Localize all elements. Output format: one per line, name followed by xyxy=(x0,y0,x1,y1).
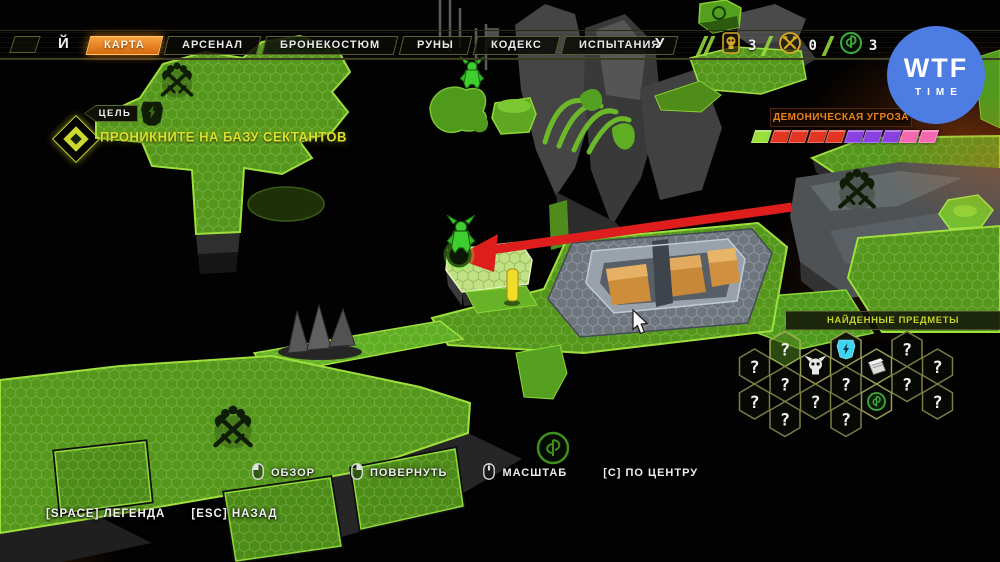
svg-text:?: ? xyxy=(902,341,912,361)
found-item-hex-codex[interactable] xyxy=(862,349,892,384)
threat-segment xyxy=(899,130,920,143)
svg-text:?: ? xyxy=(902,376,912,396)
nav-tab[interactable]: КОДЕКС xyxy=(472,36,560,55)
nav-tab[interactable]: АРСЕНАЛ xyxy=(163,36,261,55)
threat-label-strip: ДЕМОНИЧЕСКАЯ УГРОЗА xyxy=(770,108,912,127)
control-hint[interactable]: МАСШТАБ xyxy=(483,463,567,483)
currency-value: 3 xyxy=(748,38,756,54)
prev-tab-key: Й xyxy=(58,35,69,52)
armor-icon xyxy=(141,102,163,126)
found-item-hex-unknown[interactable]: ? xyxy=(770,367,800,402)
currency-separator xyxy=(761,36,774,56)
nav-tab[interactable]: РУНЫ xyxy=(399,36,472,55)
found-item-hex-unknown[interactable]: ? xyxy=(740,349,770,384)
found-item-hex-unknown[interactable]: ? xyxy=(892,367,922,402)
controls-bar: ОБЗОРПОВЕРНУТЬМАСШТАБ[C] ПО ЦЕНТРУ xyxy=(252,463,698,483)
found-item-hex-unknown[interactable]: ? xyxy=(831,367,861,402)
svg-text:?: ? xyxy=(810,393,820,413)
found-item-hex-token[interactable] xyxy=(862,384,892,419)
svg-text:?: ? xyxy=(780,341,790,361)
svg-text:?: ? xyxy=(749,358,759,378)
threat-label: ДЕМОНИЧЕСКАЯ УГРОЗА xyxy=(773,112,909,123)
currency-separator xyxy=(821,36,834,56)
objective-diamond-icon xyxy=(59,122,93,156)
control-hint[interactable]: [C] ПО ЦЕНТРУ xyxy=(603,467,698,479)
currency-item: 3 xyxy=(720,31,756,60)
currency-value: 3 xyxy=(869,38,877,54)
threat-segment xyxy=(825,130,846,143)
found-item-hex-rune[interactable] xyxy=(801,349,831,384)
threat-segment xyxy=(862,130,883,143)
control-label: ПОВЕРНУТЬ xyxy=(370,467,448,479)
objective-tag-label: ЦЕЛЬ xyxy=(85,106,137,121)
found-item-hex-unknown[interactable]: ? xyxy=(770,402,800,437)
control-hint[interactable]: ОБЗОР xyxy=(252,463,315,483)
found-item-hex-unknown-highlight[interactable]: ? xyxy=(770,332,800,367)
threat-segment xyxy=(769,130,790,143)
found-items-title: НАЙДЕННЫЕ ПРЕДМЕТЫ xyxy=(827,315,959,326)
wtf-time-logo: WTF TIME xyxy=(887,26,985,124)
currency-item: 0 xyxy=(778,31,816,60)
token-item-icon xyxy=(868,393,885,410)
nav-corner-decor xyxy=(9,36,41,53)
key-hint[interactable]: [SPACE] ЛЕГЕНДА xyxy=(46,508,165,520)
threat-segment xyxy=(917,130,938,143)
svg-text:?: ? xyxy=(780,411,790,431)
threat-meter xyxy=(753,130,936,143)
threat-segment xyxy=(751,130,772,143)
found-item-hex-unknown[interactable]: ? xyxy=(892,332,922,367)
mouse-right-icon xyxy=(351,463,363,483)
svg-text:?: ? xyxy=(749,393,759,413)
control-label: ОБЗОР xyxy=(271,467,315,479)
found-item-hex-armor[interactable] xyxy=(831,332,861,367)
nav-tabs: КАРТААРСЕНАЛБРОНЕКОСТЮМРУНЫКОДЕКСИСПЫТАН… xyxy=(88,36,676,55)
armor-item-icon xyxy=(837,340,855,359)
found-item-hex-unknown[interactable]: ? xyxy=(923,384,953,419)
mouse-left-icon xyxy=(252,463,264,483)
svg-text:?: ? xyxy=(841,376,851,396)
praetor-token-map-icon xyxy=(538,433,568,463)
found-item-hex-unknown[interactable]: ? xyxy=(831,402,861,437)
found-items-grid: ???????????? xyxy=(722,328,978,446)
found-item-hex-unknown[interactable]: ? xyxy=(923,349,953,384)
currency-value: 0 xyxy=(808,38,816,54)
threat-segment xyxy=(843,130,864,143)
map-screen: Й КАРТААРСЕНАЛБРОНЕКОСТЮМРУНЫКОДЕКСИСПЫТ… xyxy=(0,0,1000,562)
svg-text:?: ? xyxy=(780,376,790,396)
threat-segment xyxy=(806,130,827,143)
logo-line1: WTF xyxy=(904,53,968,84)
nav-tab[interactable]: БРОНЕКОСТЮМ xyxy=(261,36,398,55)
svg-text:?: ? xyxy=(841,411,851,431)
control-label: [C] ПО ЦЕНТРУ xyxy=(603,467,698,479)
praetor-token-icon xyxy=(839,31,863,60)
svg-text:?: ? xyxy=(932,358,942,378)
currency-item: 3 xyxy=(839,31,877,60)
hints-bar: [SPACE] ЛЕГЕНДА[ESC] НАЗАД xyxy=(46,508,278,520)
control-label: МАСШТАБ xyxy=(502,467,567,479)
found-item-hex-unknown[interactable]: ? xyxy=(801,384,831,419)
nav-tab[interactable]: КАРТА xyxy=(86,36,164,55)
threat-segment xyxy=(880,130,901,143)
currency-bar: 303 xyxy=(700,31,877,60)
threat-segment xyxy=(788,130,809,143)
svg-text:?: ? xyxy=(932,393,942,413)
mouse-wheel-icon xyxy=(483,463,495,483)
crossed-hammers-icon xyxy=(778,31,802,60)
control-hint[interactable]: ПОВЕРНУТЬ xyxy=(351,463,448,483)
logo-line2: TIME xyxy=(909,87,963,98)
key-hint[interactable]: [ESC] НАЗАД xyxy=(191,508,277,520)
next-tab-key: У xyxy=(655,35,664,52)
skull-token-icon xyxy=(720,31,742,60)
found-item-hex-unknown[interactable]: ? xyxy=(740,384,770,419)
objective-text: ПРОНИКНИТЕ НА БАЗУ СЕКТАНТОВ xyxy=(100,129,347,145)
